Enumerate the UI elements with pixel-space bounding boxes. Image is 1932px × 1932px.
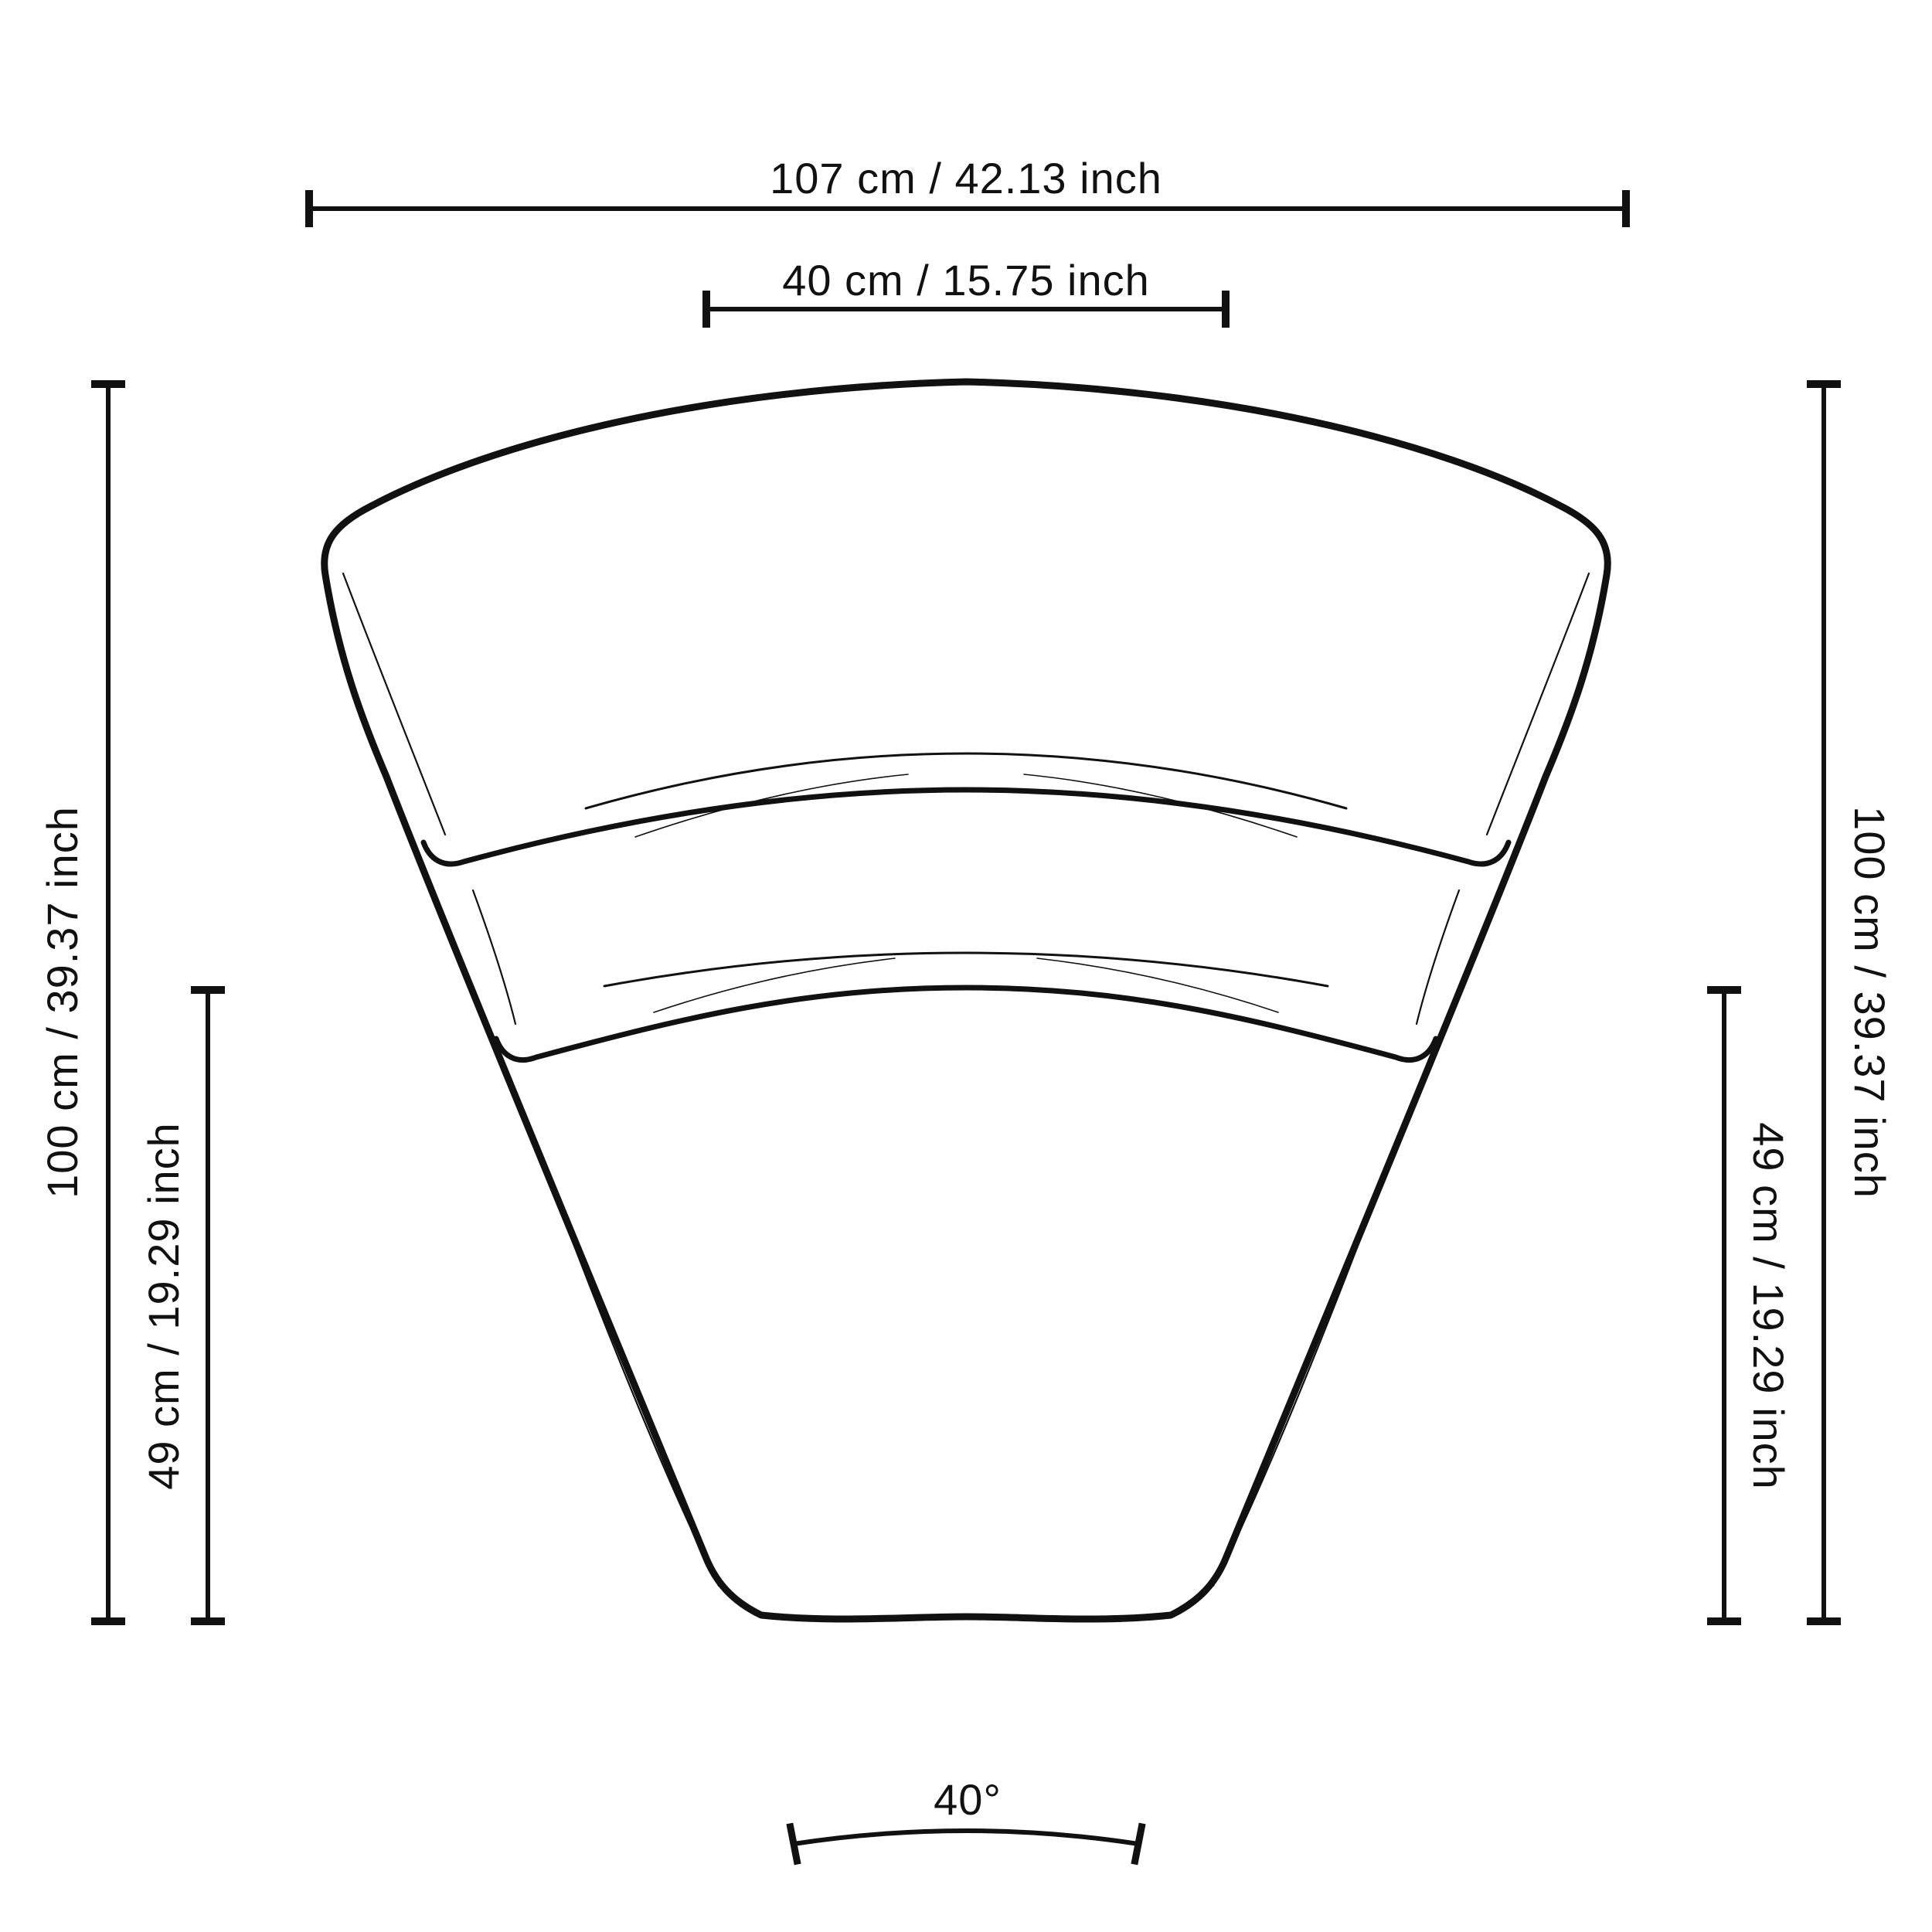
dim-label-angle: 40° xyxy=(934,1775,1002,1824)
dim-depth-left: 49 cm / 19.29 inch xyxy=(139,990,225,1621)
dim-depth-right: 49 cm / 19.29 inch xyxy=(1707,990,1793,1621)
dim-top-width: 40 cm / 15.75 inch xyxy=(706,256,1226,328)
dim-angle: 40° xyxy=(790,1775,1142,1865)
dimension-diagram: 107 cm / 42.13 inch 40 cm / 15.75 inch 1… xyxy=(0,0,1932,1932)
dim-label-depth-left: 49 cm / 19.29 inch xyxy=(139,1122,188,1490)
dim-label-top-width: 40 cm / 15.75 inch xyxy=(782,256,1150,304)
dim-height-right: 100 cm / 39.37 inch xyxy=(1807,384,1894,1621)
dim-height-left: 100 cm / 39.37 inch xyxy=(38,384,125,1621)
dim-label-height-right: 100 cm / 39.37 inch xyxy=(1845,806,1894,1199)
dim-label-height-left: 100 cm / 39.37 inch xyxy=(38,806,87,1199)
sofa-outline xyxy=(325,382,1608,1619)
dim-total-width: 107 cm / 42.13 inch xyxy=(309,154,1626,227)
dim-tick-end xyxy=(1134,1823,1142,1864)
dim-angle-arc xyxy=(794,1831,1138,1844)
dim-tick-start xyxy=(790,1823,798,1864)
sofa-module xyxy=(325,382,1608,1619)
dim-label-total-width: 107 cm / 42.13 inch xyxy=(770,154,1162,202)
dim-label-depth-right: 49 cm / 19.29 inch xyxy=(1744,1122,1793,1490)
